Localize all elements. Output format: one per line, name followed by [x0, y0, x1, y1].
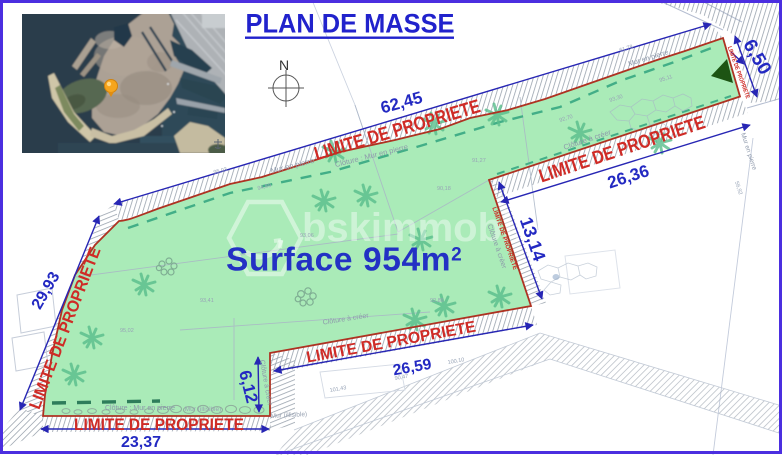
svg-text:PLAN DE MASSE: PLAN DE MASSE [246, 9, 455, 39]
svg-text:90,18: 90,18 [437, 186, 451, 192]
svg-text:LIMITE DE PROPRIETE: LIMITE DE PROPRIETE [74, 415, 244, 434]
svg-text:95,02: 95,02 [120, 328, 134, 334]
svg-text:93,06: 93,06 [300, 233, 314, 239]
svg-text:Clôture : Mur en pierre: Clôture : Mur en pierre [105, 405, 175, 412]
svg-text:Mur (illisible): Mur (illisible) [185, 406, 221, 413]
svg-text:Surface 954m2: Surface 954m2 [226, 242, 462, 279]
svg-text:93,41: 93,41 [200, 298, 214, 304]
svg-text:N: N [279, 57, 289, 73]
svg-text:92,86: 92,86 [430, 298, 444, 304]
svg-text:91,27: 91,27 [472, 158, 486, 164]
svg-text:23,37: 23,37 [121, 434, 161, 451]
